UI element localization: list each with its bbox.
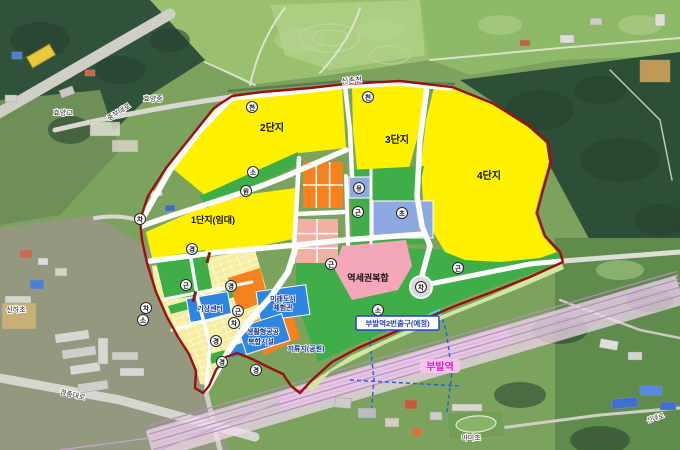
marker-char: 천 bbox=[249, 103, 255, 112]
label-ami-school: 아미초 bbox=[461, 433, 481, 442]
marker-char: 근 bbox=[328, 261, 334, 269]
marker-char: 유 bbox=[356, 184, 362, 193]
station-name-label: 부발역 bbox=[420, 359, 460, 373]
label-future-city-2: 체험관 bbox=[273, 303, 293, 312]
label-complex3: 3단지 bbox=[385, 133, 409, 146]
label-living-public-2: 복합시설 bbox=[248, 337, 274, 346]
label-retention-pond: 저류지(공원) bbox=[288, 344, 325, 353]
label-weather-center: 기상센터 bbox=[197, 304, 223, 313]
label-station-name: 부발역 bbox=[426, 360, 454, 373]
marker-char: 경 bbox=[189, 245, 195, 254]
marker-char: 근 bbox=[183, 282, 189, 290]
development-plan-map: 차 천 소 원 천 유 근 초 근 경 근 경 차 소 근 차 경 경 경 차 … bbox=[0, 0, 680, 450]
marker-char: 소 bbox=[140, 317, 146, 325]
marker-char: 근 bbox=[235, 308, 241, 316]
label-complex2: 2단지 bbox=[260, 121, 284, 134]
marker-char: 소 bbox=[250, 169, 256, 177]
marker-char: 경 bbox=[228, 282, 234, 291]
marker-char: 근 bbox=[355, 209, 361, 217]
label-complex1: 1단지(임대) bbox=[191, 214, 235, 225]
label-complex4: 4단지 bbox=[477, 169, 501, 182]
marker-char: 소 bbox=[375, 307, 381, 315]
label-station-exit: 부발역2번출구(예정) bbox=[365, 318, 430, 328]
marker-char: 차 bbox=[143, 304, 149, 313]
label-hyoyang-school-1: 효양고 bbox=[53, 109, 73, 117]
satellite-map-svg: 차 천 소 원 천 유 근 초 근 경 근 경 차 소 근 차 경 경 경 차 … bbox=[0, 0, 680, 450]
marker-char: 초 bbox=[399, 209, 405, 218]
label-future-city-1: 미래도시 bbox=[270, 294, 296, 303]
marker-char: 경 bbox=[253, 366, 259, 375]
marker-char: 경 bbox=[213, 337, 219, 346]
label-sinha-school: 신하초 bbox=[6, 305, 26, 314]
marker-char: 근 bbox=[455, 265, 461, 273]
marker-char: 천 bbox=[365, 93, 371, 102]
station-exit-callout: 부발역2번출구(예정) bbox=[356, 316, 439, 330]
label-living-public-1: 생활형공공 bbox=[247, 327, 280, 336]
marker-char: 원 bbox=[243, 187, 249, 196]
marker-char: 차 bbox=[137, 215, 143, 224]
label-station-mixed: 역세권복합 bbox=[347, 272, 389, 283]
marker-char: 차 bbox=[418, 283, 424, 292]
label-hyoyang-school-2: 효양중 bbox=[143, 95, 163, 103]
marker-char: 경 bbox=[219, 358, 225, 367]
marker-char: 차 bbox=[231, 319, 237, 328]
